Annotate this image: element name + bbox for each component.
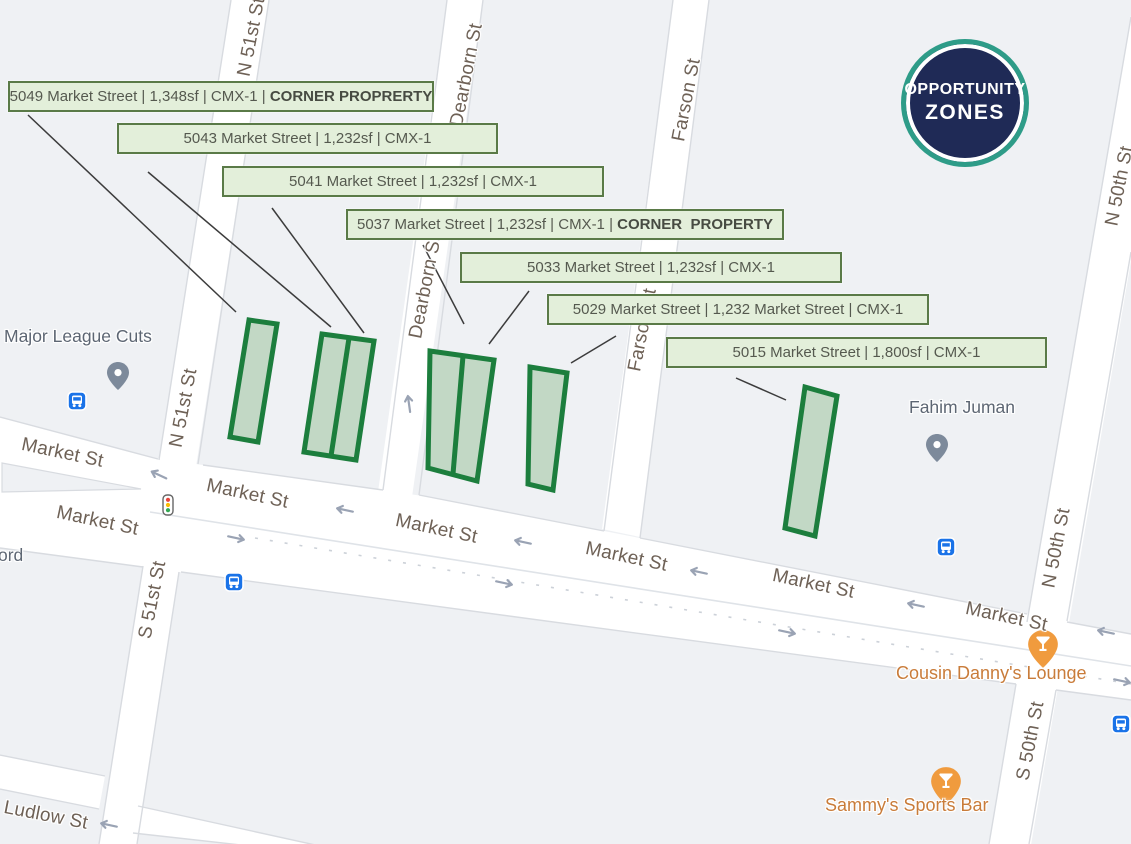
property-label-text: 5049 Market Street | 1,348sf | CMX-1 | (10, 88, 270, 105)
property-label-text: 5015 Market Street | 1,800sf | CMX-1 (733, 344, 981, 361)
property-label-text: 5043 Market Street | 1,232sf | CMX-1 (184, 130, 432, 147)
logo-line-1: OPPORTUNITY (904, 81, 1025, 99)
opportunity-zones-property-map: Market St Market St Market St Market St … (0, 0, 1131, 844)
property-label-bold-text: CORNER PROPERTY (617, 216, 773, 233)
property-label-5015: 5015 Market Street | 1,800sf | CMX-1 (666, 337, 1047, 368)
traffic-light-icon (163, 495, 173, 515)
property-label-text: 5041 Market Street | 1,232sf | CMX-1 (289, 173, 537, 190)
bus-stop-icon[interactable] (937, 538, 955, 556)
bus-stop-icon[interactable] (225, 573, 243, 591)
poi-label-major-league-cuts[interactable]: Major League Cuts (4, 326, 152, 347)
poi-label-fahim-juman[interactable]: Fahim Juman (909, 397, 1015, 418)
property-label-5029: 5029 Market Street | 1,232 Market Street… (547, 294, 929, 325)
poi-label-sammys-sports-bar[interactable]: Sammy's Sports Bar (825, 795, 988, 816)
property-label-bold-text: CORNER PROPRERTY (270, 88, 433, 105)
property-label-text: 5037 Market Street | 1,232sf | CMX-1 | (357, 216, 617, 233)
bus-stop-icon[interactable] (68, 392, 86, 410)
property-label-text: 5033 Market Street | 1,232sf | CMX-1 (527, 259, 775, 276)
bus-stop-icon[interactable] (1112, 715, 1130, 733)
property-label-5041: 5041 Market Street | 1,232sf | CMX-1 (222, 166, 604, 197)
opportunity-zones-logo: OPPORTUNITY ZONES (901, 39, 1029, 167)
poi-label-partial[interactable]: ord (0, 545, 23, 566)
property-label-5037: 5037 Market Street | 1,232sf | CMX-1 | C… (346, 209, 784, 240)
property-label-5043: 5043 Market Street | 1,232sf | CMX-1 (117, 123, 498, 154)
logo-line-2: ZONES (925, 101, 1005, 125)
property-label-5049: 5049 Market Street | 1,348sf | CMX-1 | C… (8, 81, 434, 112)
poi-label-cousin-dannys-lounge[interactable]: Cousin Danny's Lounge (896, 663, 1087, 684)
property-label-text: 5029 Market Street | 1,232 Market Street… (573, 301, 903, 318)
property-label-5033: 5033 Market Street | 1,232sf | CMX-1 (460, 252, 842, 283)
